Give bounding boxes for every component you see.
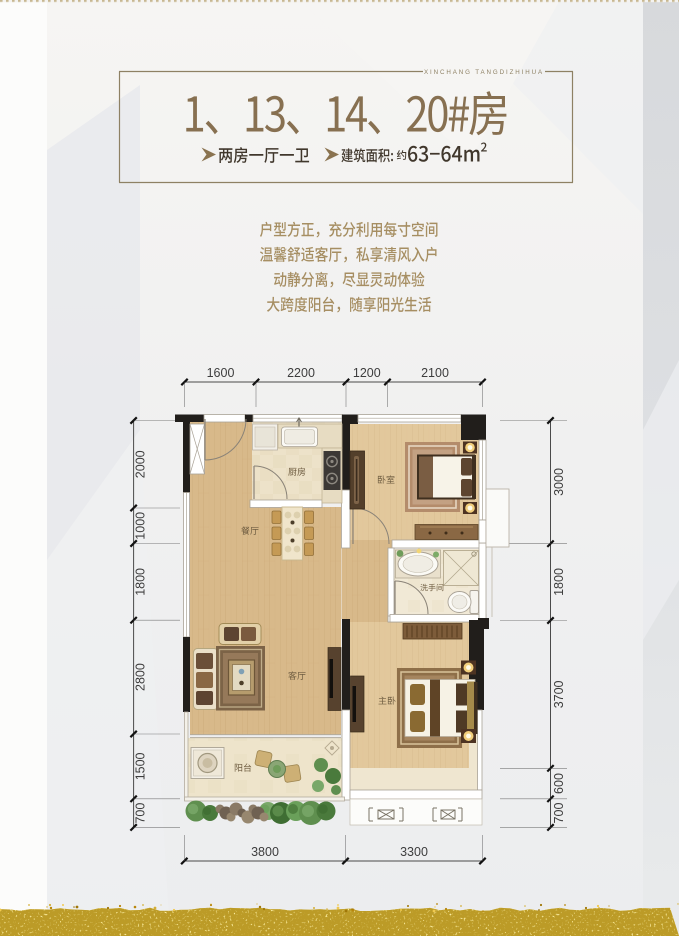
svg-text:3300: 3300 xyxy=(400,845,428,859)
svg-text:600: 600 xyxy=(552,773,566,794)
svg-text:1600: 1600 xyxy=(207,366,235,380)
svg-text:2000: 2000 xyxy=(134,450,148,478)
svg-text:3700: 3700 xyxy=(552,680,566,708)
svg-text:2800: 2800 xyxy=(134,663,148,691)
svg-text:1000: 1000 xyxy=(134,512,148,540)
svg-text:3800: 3800 xyxy=(251,845,279,859)
svg-text:3000: 3000 xyxy=(552,468,566,496)
svg-text:1800: 1800 xyxy=(552,568,566,596)
svg-text:700: 700 xyxy=(552,803,566,824)
svg-text:2200: 2200 xyxy=(287,366,315,380)
svg-text:1200: 1200 xyxy=(353,366,381,380)
svg-text:XINCHANG TANGDIZHIHUA: XINCHANG TANGDIZHIHUA xyxy=(424,69,544,76)
svg-text:2100: 2100 xyxy=(421,366,449,380)
svg-text:700: 700 xyxy=(134,803,148,824)
svg-text:1500: 1500 xyxy=(134,752,148,780)
svg-text:1800: 1800 xyxy=(134,568,148,596)
